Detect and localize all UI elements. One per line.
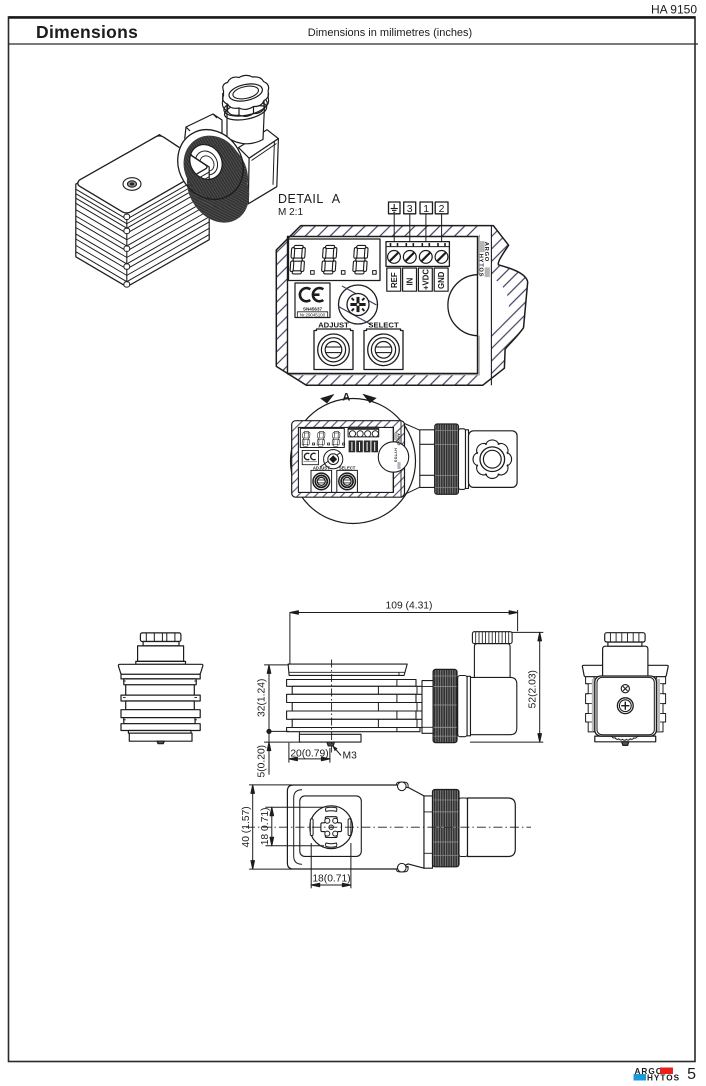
svg-text:REF: REF [390,272,399,288]
svg-text:2: 2 [439,203,445,215]
svg-text:Dimensions in milimetres (inch: Dimensions in milimetres (inches) [308,27,472,39]
svg-text:52(2.03): 52(2.03) [527,670,538,708]
svg-text:HYTOS: HYTOS [647,1074,680,1083]
svg-text:DETAIL A: DETAIL A [278,192,341,206]
svg-text:3: 3 [407,203,413,215]
svg-text:SELECT: SELECT [368,321,399,330]
svg-text:M 2:1: M 2:1 [278,207,303,218]
svg-text:Dimensions: Dimensions [36,22,138,42]
svg-text:HYTOS: HYTOS [477,254,483,277]
svg-text:109 (4.31): 109 (4.31) [386,601,433,612]
svg-text:IN: IN [406,277,415,285]
svg-text:A: A [342,392,350,404]
svg-text:HA 9150: HA 9150 [651,3,697,17]
svg-text:SN45637: SN45637 [303,307,323,312]
svg-text:ARGO: ARGO [397,433,401,445]
svg-text:18(0.71): 18(0.71) [312,874,350,885]
svg-text:M3: M3 [343,751,358,762]
svg-text:HYTOS: HYTOS [393,448,397,463]
svg-text:20(0.79): 20(0.79) [290,748,328,759]
svg-text:32(1.24): 32(1.24) [257,679,268,717]
svg-text:18 0.71): 18 0.71) [260,808,271,846]
svg-text:ADJUST: ADJUST [318,321,349,330]
svg-text:5(0.20): 5(0.20) [257,745,268,778]
svg-text:1: 1 [423,203,429,215]
svg-text:5: 5 [687,1066,696,1083]
svg-text:GND: GND [437,271,446,289]
svg-text:Nr.29045100: Nr.29045100 [300,312,326,317]
svg-text:40 (1.57): 40 (1.57) [241,806,252,847]
svg-text:+VDC: +VDC [421,269,430,290]
